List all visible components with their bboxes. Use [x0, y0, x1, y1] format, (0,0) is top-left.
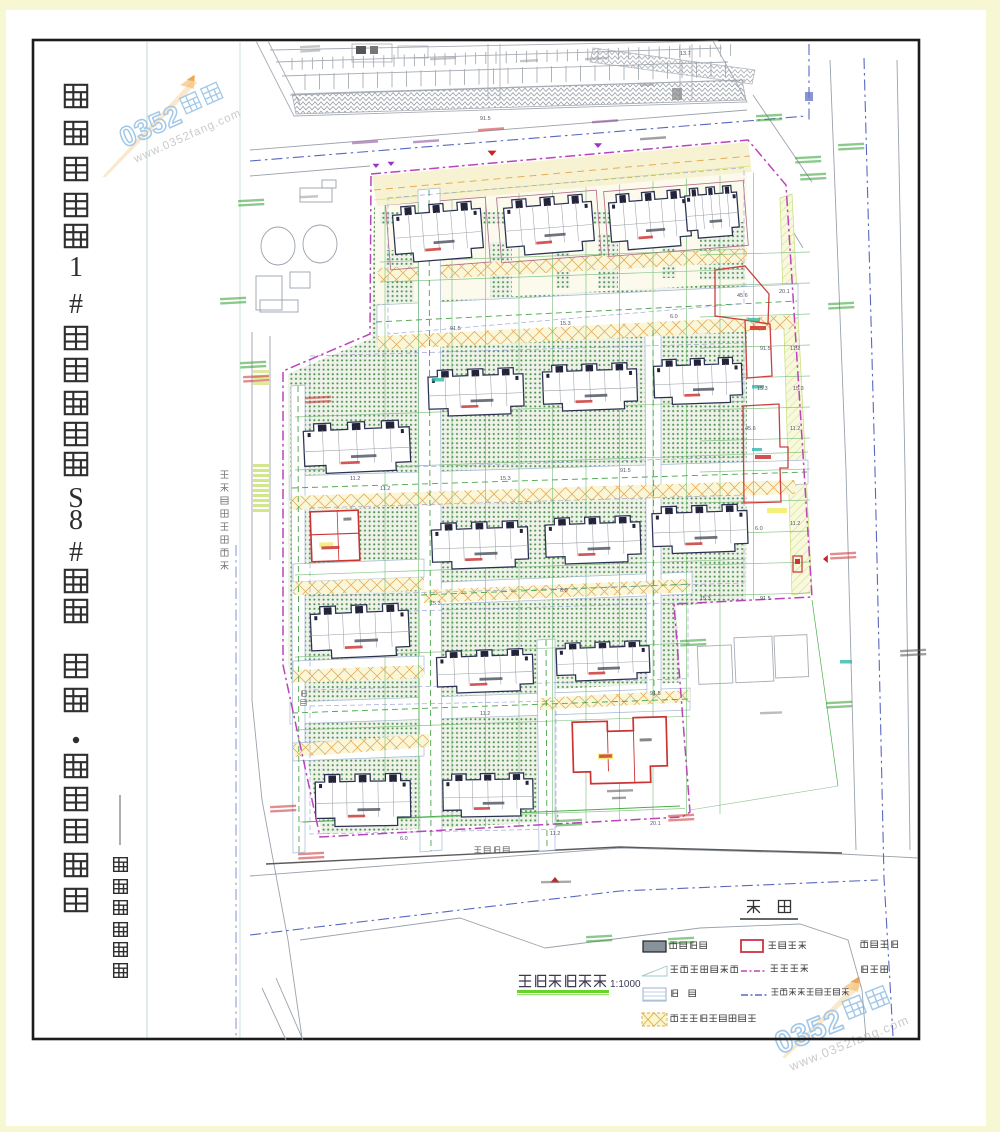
svg-text:15.3: 15.3: [793, 386, 804, 392]
svg-text:15.3: 15.3: [430, 601, 441, 607]
svg-text:15.3: 15.3: [700, 596, 711, 602]
svg-text:11.2: 11.2: [550, 831, 560, 837]
svg-text:6.0: 6.0: [755, 526, 763, 532]
svg-text:11.2: 11.2: [350, 476, 360, 482]
svg-text:6.0: 6.0: [670, 314, 678, 320]
svg-text:91.5: 91.5: [650, 691, 661, 697]
svg-text:1:1000: 1:1000: [610, 979, 641, 990]
svg-text:91.5: 91.5: [760, 596, 771, 602]
svg-text:91.5: 91.5: [760, 346, 771, 352]
svg-text:20.1: 20.1: [779, 289, 790, 295]
svg-text:#: #: [69, 537, 83, 568]
svg-text:11.2: 11.2: [480, 711, 490, 717]
svg-text:45.6: 45.6: [745, 426, 756, 432]
svg-text:6.0: 6.0: [560, 588, 568, 594]
svg-text:11.2: 11.2: [790, 521, 800, 527]
svg-text:11.2: 11.2: [380, 486, 390, 492]
svg-text:15.3: 15.3: [560, 321, 571, 327]
svg-text:6.0: 6.0: [400, 836, 408, 842]
svg-text:45.6: 45.6: [737, 293, 748, 299]
svg-text:11.2: 11.2: [790, 346, 800, 352]
svg-text:#: #: [69, 289, 83, 320]
svg-text:91.5: 91.5: [480, 116, 491, 122]
svg-text:91.5: 91.5: [450, 326, 461, 332]
svg-text:8: 8: [69, 505, 83, 536]
svg-text:13.7: 13.7: [680, 51, 691, 57]
svg-text:91.5: 91.5: [620, 468, 631, 474]
svg-text:20.1: 20.1: [650, 821, 661, 827]
svg-text:15.3: 15.3: [500, 476, 511, 482]
svg-text:15.3: 15.3: [757, 386, 768, 392]
svg-text:1: 1: [69, 252, 83, 283]
svg-text:11.2: 11.2: [790, 426, 800, 432]
